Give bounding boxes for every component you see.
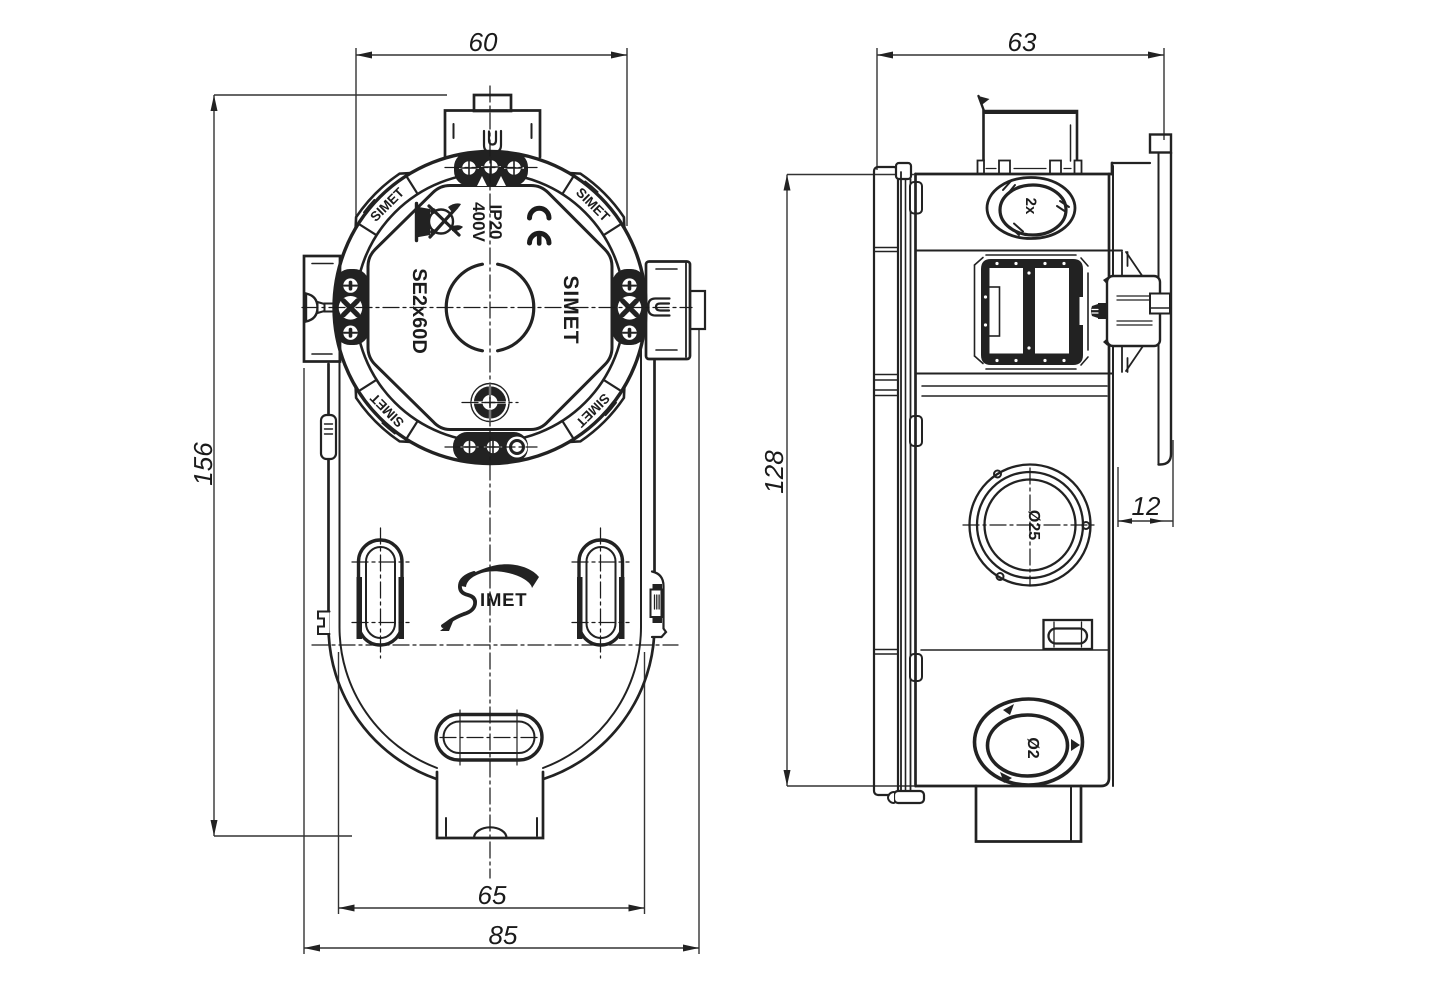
svg-text:2x: 2x	[1022, 198, 1039, 215]
svg-text:85: 85	[489, 920, 518, 950]
svg-text:60: 60	[469, 27, 498, 57]
svg-text:128: 128	[759, 450, 789, 494]
svg-text:12: 12	[1132, 491, 1161, 521]
svg-text:Ø2: Ø2	[1024, 737, 1041, 758]
svg-text:156: 156	[188, 442, 218, 486]
svg-text:SIMET: SIMET	[559, 275, 582, 344]
svg-text:63: 63	[1008, 27, 1037, 57]
svg-text:IMET: IMET	[480, 589, 527, 610]
svg-text:400V: 400V	[469, 202, 488, 242]
svg-text:SE2x60D: SE2x60D	[408, 268, 430, 354]
svg-text:65: 65	[478, 880, 507, 910]
